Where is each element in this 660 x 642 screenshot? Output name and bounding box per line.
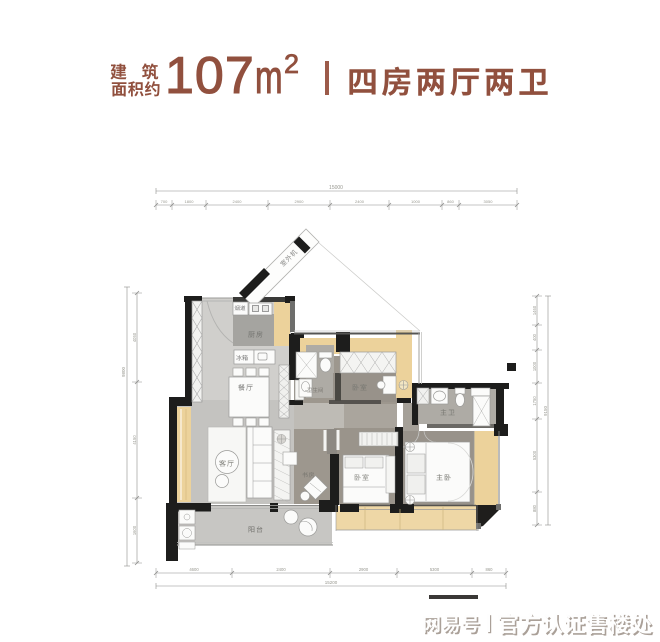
svg-text:2400: 2400: [355, 199, 365, 204]
svg-text:2: 2: [284, 49, 299, 79]
svg-text:1000: 1000: [532, 361, 537, 371]
svg-text:107: 107: [165, 47, 255, 105]
svg-text:4600: 4600: [189, 567, 199, 572]
svg-text:4150: 4150: [132, 435, 137, 445]
svg-text:2900: 2900: [295, 199, 305, 204]
svg-text:1600: 1600: [132, 525, 137, 535]
svg-text:2900: 2900: [359, 567, 369, 572]
svg-text:9800: 9800: [121, 366, 126, 377]
svg-text:860: 860: [486, 567, 494, 572]
svg-text:5300: 5300: [532, 450, 537, 460]
svg-text:1460: 1460: [532, 305, 537, 315]
svg-text:1800: 1800: [185, 199, 195, 204]
svg-text:9150: 9150: [543, 405, 548, 416]
svg-text:15000: 15000: [329, 185, 343, 191]
svg-text:m: m: [255, 53, 283, 103]
svg-text:400: 400: [532, 333, 537, 341]
svg-text:15200: 15200: [325, 580, 338, 585]
svg-text:3050: 3050: [484, 199, 494, 204]
svg-text:4050: 4050: [132, 332, 137, 342]
svg-text:880: 880: [532, 504, 537, 512]
svg-text:2400: 2400: [276, 567, 286, 572]
svg-text:700: 700: [161, 199, 168, 204]
svg-text:1750: 1750: [532, 396, 537, 406]
svg-text:2400: 2400: [233, 199, 243, 204]
svg-text:5300: 5300: [430, 567, 440, 572]
svg-text:860: 860: [447, 199, 454, 204]
svg-text:1000: 1000: [411, 199, 421, 204]
